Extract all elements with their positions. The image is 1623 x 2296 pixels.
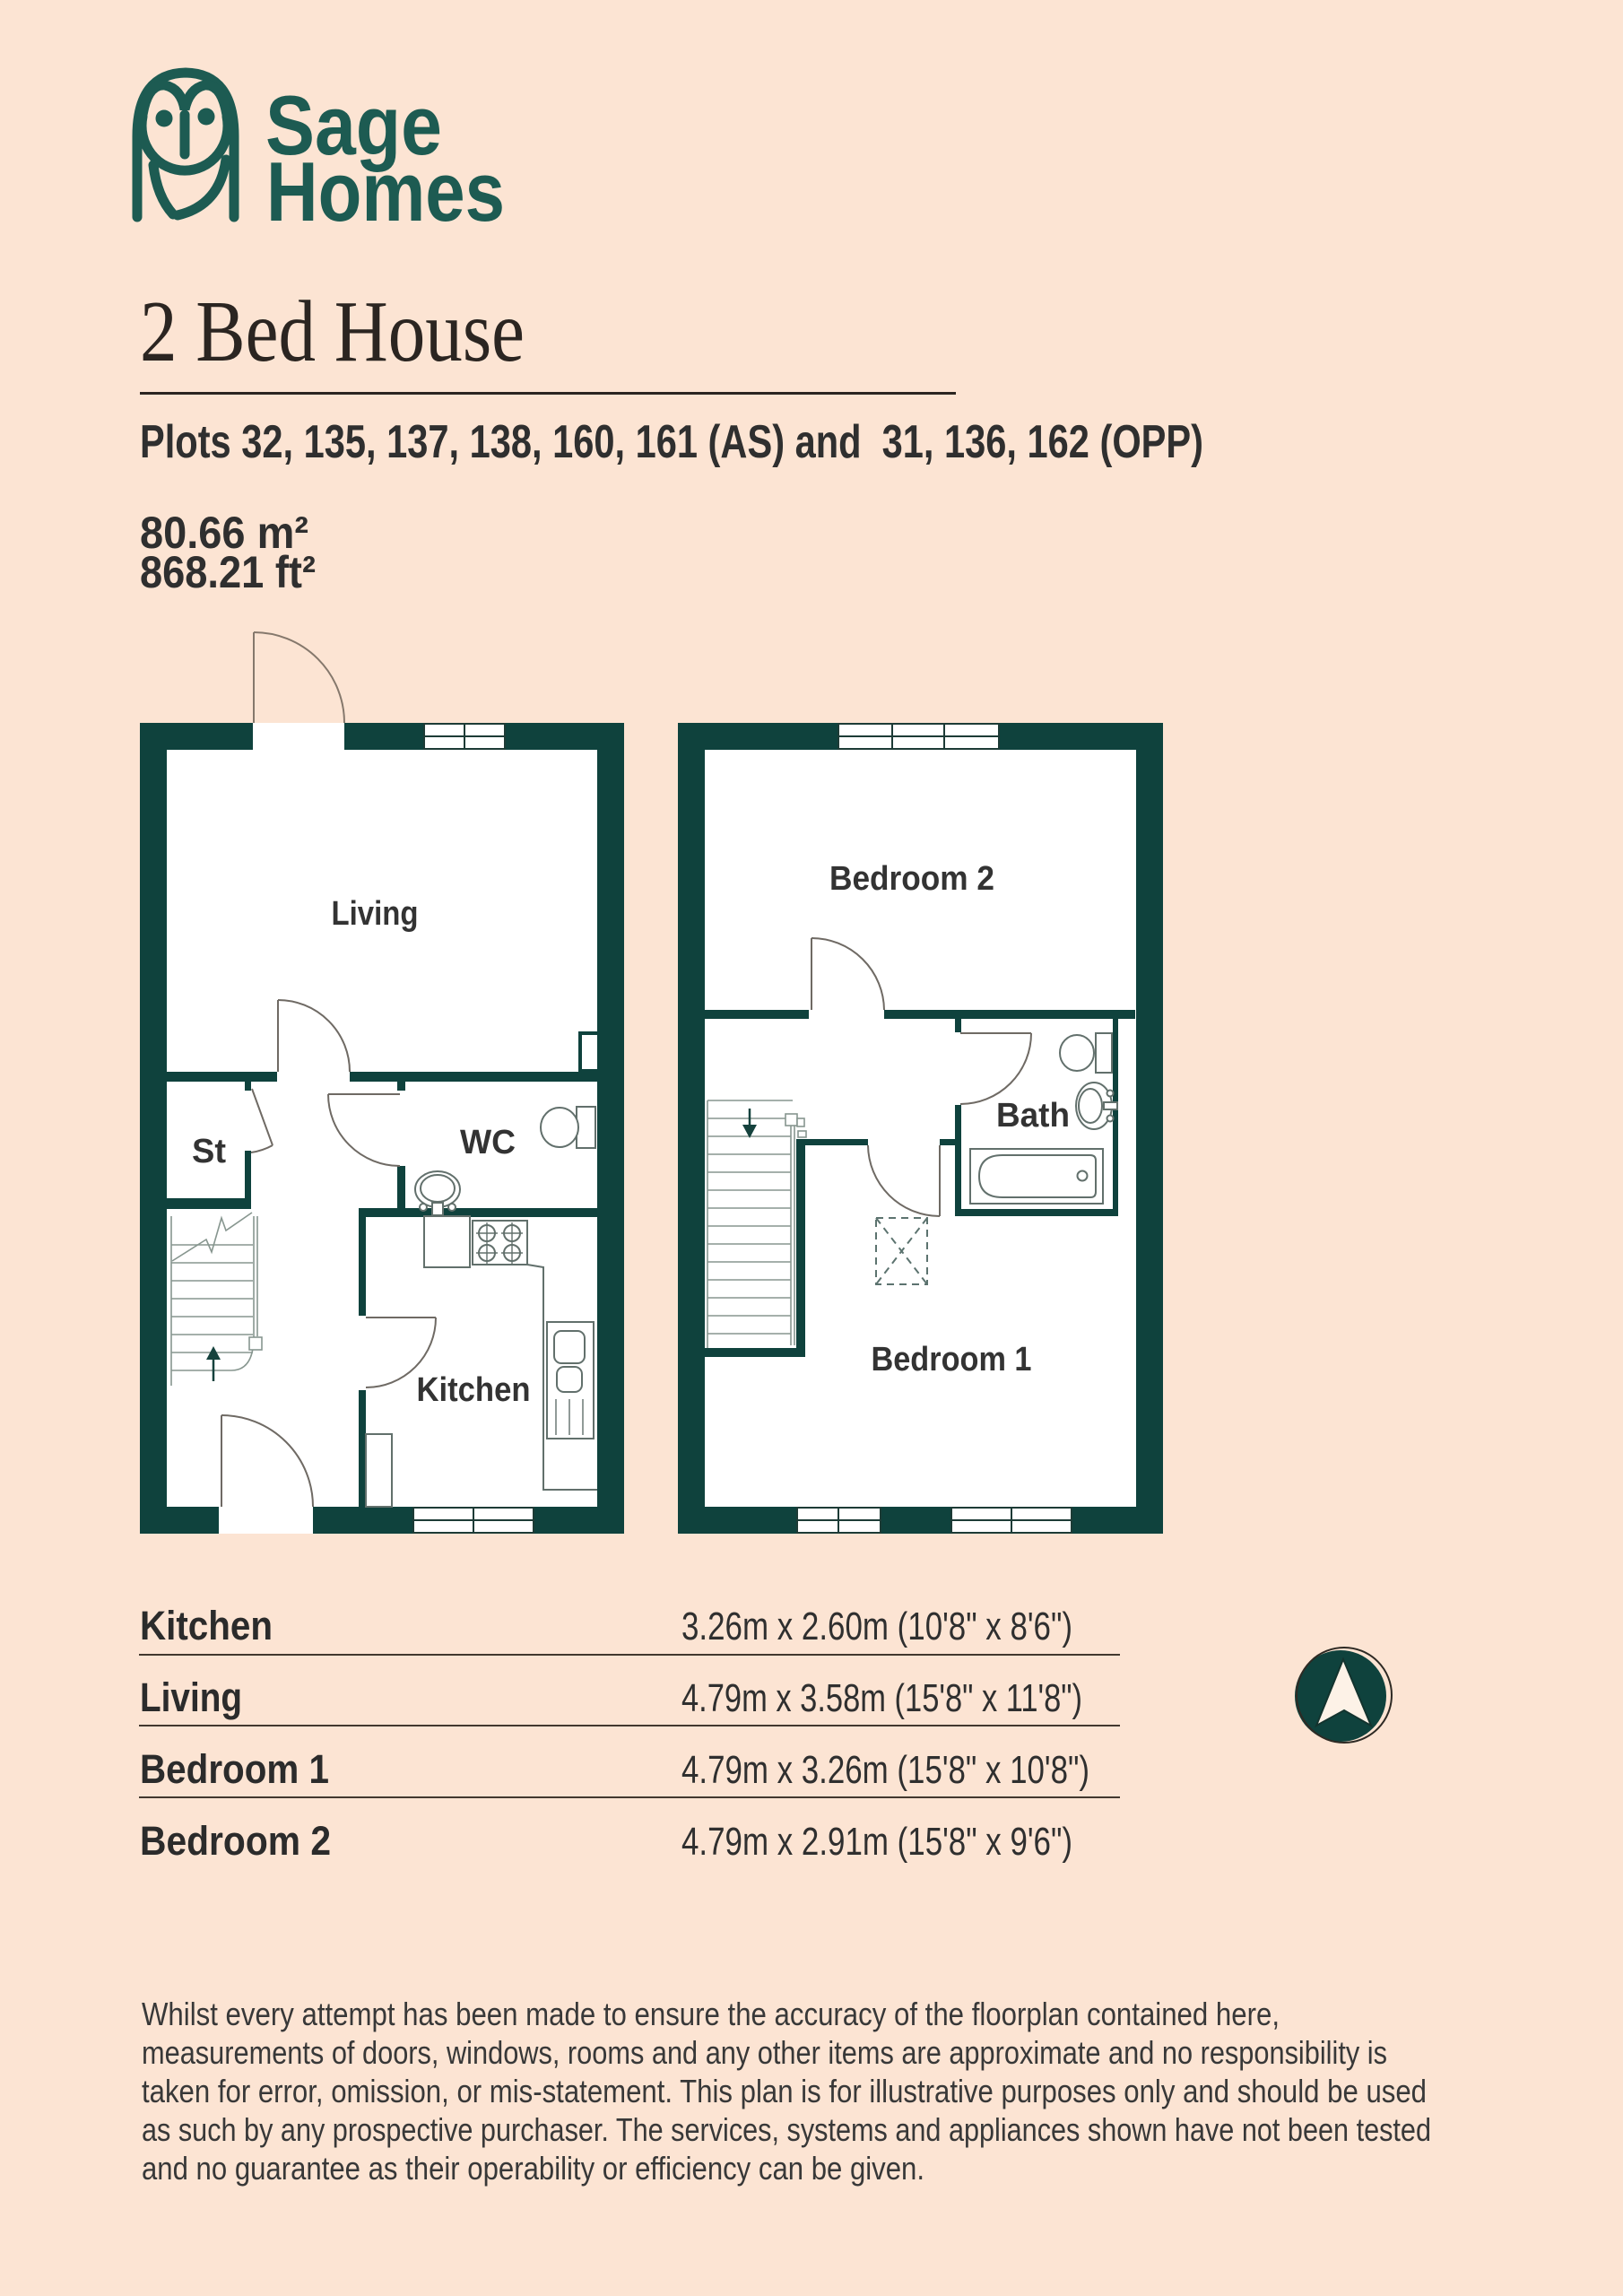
svg-text:4.79m x 3.58m (15'8" x 11'8"): 4.79m x 3.58m (15'8" x 11'8") <box>681 1676 1082 1720</box>
svg-text:2 Bed House: 2 Bed House <box>140 283 525 380</box>
svg-text:St: St <box>192 1133 226 1170</box>
svg-text:Bath: Bath <box>996 1097 1070 1135</box>
svg-text:Bedroom 2: Bedroom 2 <box>140 1818 331 1864</box>
svg-text:Whilst every attempt has been: Whilst every attempt has been made to en… <box>142 1996 1280 2032</box>
svg-text:Bedroom 1: Bedroom 1 <box>872 1341 1032 1378</box>
svg-text:868.21 ft²: 868.21 ft² <box>140 547 316 597</box>
svg-text:Homes: Homes <box>266 144 505 239</box>
svg-text:Kitchen: Kitchen <box>140 1603 273 1648</box>
svg-text:Living: Living <box>140 1674 242 1720</box>
svg-text:measurements of doors, windows: measurements of doors, windows, rooms an… <box>142 2034 1387 2071</box>
svg-text:4.79m x 3.26m (15'8" x 10'8"): 4.79m x 3.26m (15'8" x 10'8") <box>681 1748 1089 1792</box>
svg-text:WC: WC <box>460 1124 516 1161</box>
svg-text:and no guarantee as their oper: and no guarantee as their operability or… <box>142 2150 924 2187</box>
svg-text:as such by any prospective pur: as such by any prospective purchaser. Th… <box>142 2111 1431 2148</box>
svg-text:3.26m x 2.60m (10'8" x 8'6"): 3.26m x 2.60m (10'8" x 8'6") <box>681 1605 1072 1648</box>
svg-text:Bedroom 1: Bedroom 1 <box>140 1746 329 1792</box>
svg-text:Plots 32, 135, 137, 138, 160,: Plots 32, 135, 137, 138, 160, 161 (AS) a… <box>140 416 1203 468</box>
svg-text:Bedroom 2: Bedroom 2 <box>829 860 994 898</box>
svg-text:4.79m x 2.91m (15'8" x 9'6"): 4.79m x 2.91m (15'8" x 9'6") <box>681 1820 1072 1864</box>
svg-text:Kitchen: Kitchen <box>417 1371 531 1409</box>
svg-text:taken for error, omission, or: taken for error, omission, or mis-statem… <box>142 2073 1427 2109</box>
svg-text:Living: Living <box>332 895 419 933</box>
